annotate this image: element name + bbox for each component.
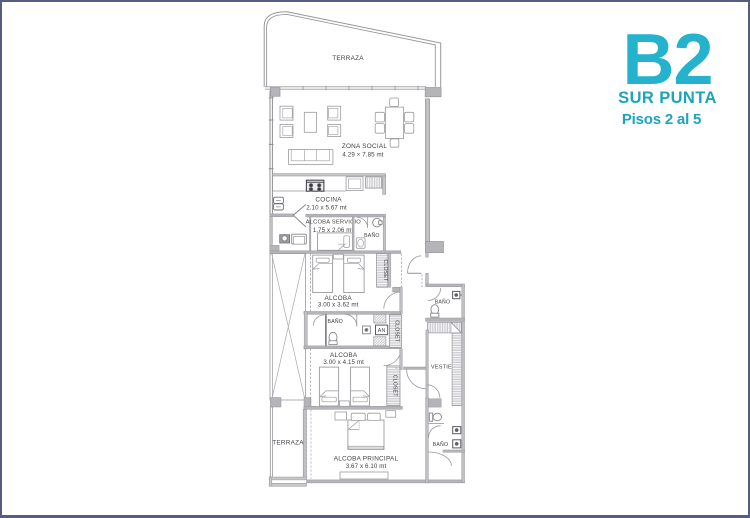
svg-text:COCINA: COCINA [315,197,342,204]
svg-text:BAÑO: BAÑO [435,299,451,306]
svg-text:BAÑO: BAÑO [433,441,449,448]
svg-text:CLOSET: CLOSET [392,375,398,398]
svg-text:3.67 x 6.10 mt: 3.67 x 6.10 mt [346,463,387,470]
svg-text:3.00 x 3.62 mt: 3.00 x 3.62 mt [318,302,359,309]
svg-text:3.00 x 4.15 mt: 3.00 x 4.15 mt [323,359,364,366]
svg-text:ALCOBA PRINCIPAL: ALCOBA PRINCIPAL [334,455,399,462]
svg-text:BAÑO: BAÑO [364,232,380,239]
svg-text:2.10 x 5.67 mt: 2.10 x 5.67 mt [306,204,347,211]
svg-text:BAÑO: BAÑO [328,318,344,325]
svg-text:CLOSET: CLOSET [394,320,400,343]
svg-text:ZONA SOCIAL: ZONA SOCIAL [342,143,388,150]
svg-text:CLOSET: CLOSET [382,259,388,282]
svg-text:4.29 × 7.85 mt: 4.29 × 7.85 mt [342,152,383,159]
svg-text:TERRAZA: TERRAZA [332,55,364,62]
svg-text:TERRAZA: TERRAZA [272,439,304,446]
svg-text:AN: AN [378,328,386,334]
